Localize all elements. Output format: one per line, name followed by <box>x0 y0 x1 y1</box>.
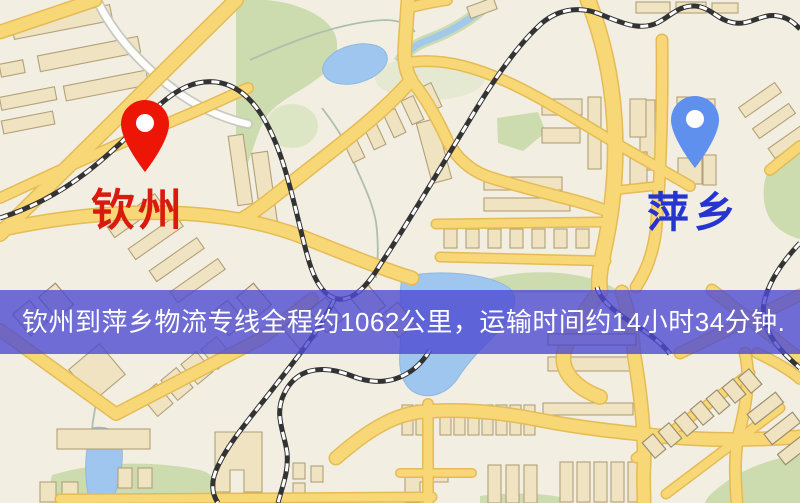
route-info-text: 钦州到萍乡物流专线全程约1062公里，运输时间约14小时34分钟. <box>22 290 785 354</box>
destination-city-label: 萍乡 <box>634 179 754 240</box>
route-map: 钦州 萍乡 钦州到萍乡物流专线全程约1062公里，运输时间约14小时34分钟. <box>0 0 800 503</box>
map-canvas <box>0 0 800 503</box>
origin-city-label: 钦州 <box>76 174 200 238</box>
route-info-banner: 钦州到萍乡物流专线全程约1062公里，运输时间约14小时34分钟. <box>0 290 800 354</box>
